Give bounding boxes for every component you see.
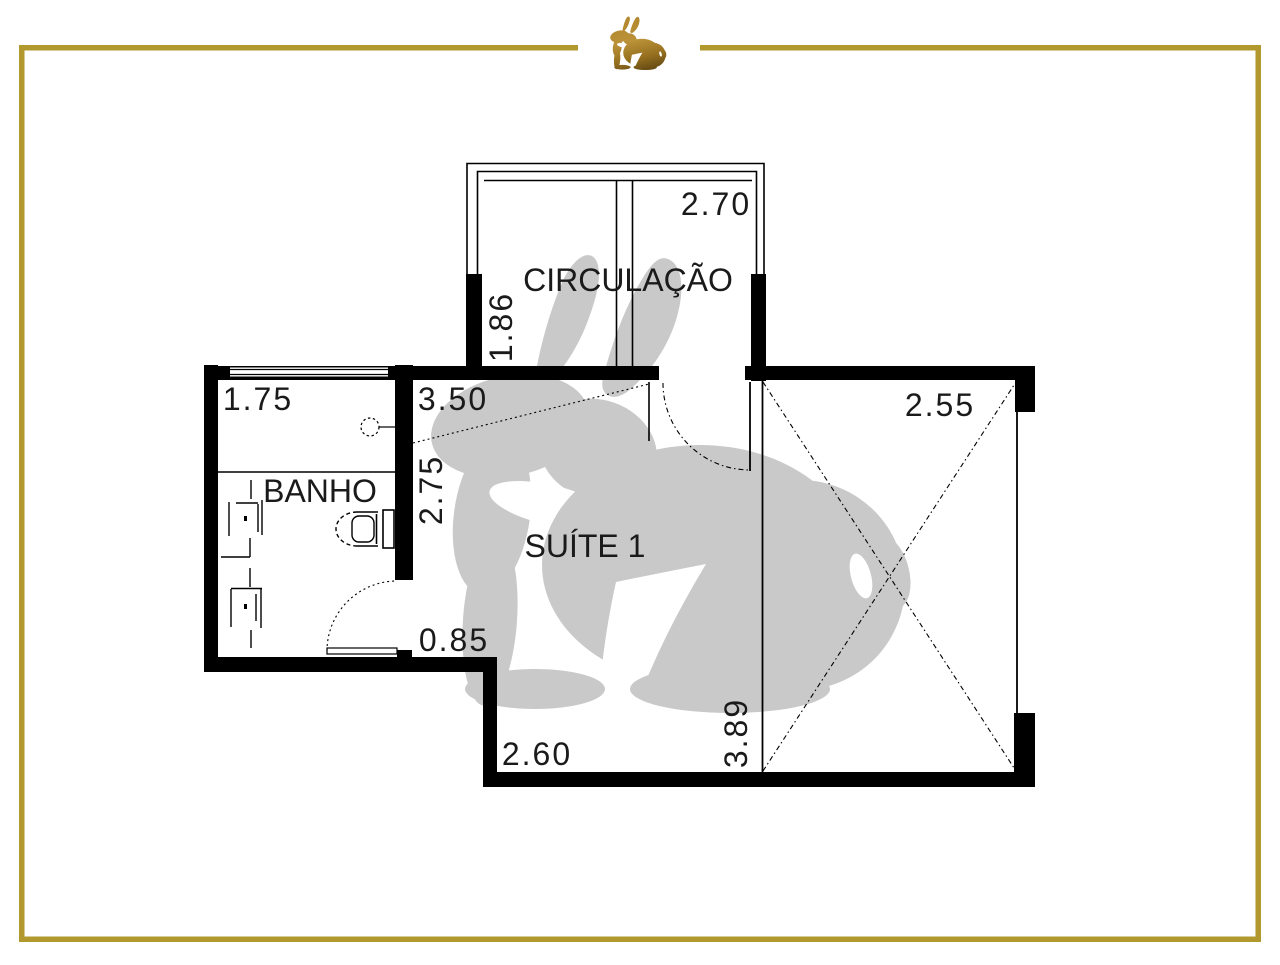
svg-text:2.70: 2.70: [681, 186, 751, 222]
svg-text:BANHO: BANHO: [263, 473, 377, 509]
svg-text:CIRCULAÇÃO: CIRCULAÇÃO: [523, 262, 733, 298]
svg-text:2.60: 2.60: [502, 736, 572, 772]
svg-text:3.50: 3.50: [418, 381, 488, 417]
svg-text:2.55: 2.55: [905, 387, 975, 423]
svg-text:SUÍTE 1: SUÍTE 1: [525, 528, 646, 564]
svg-text:2.75: 2.75: [413, 455, 449, 525]
svg-text:1.75: 1.75: [223, 381, 293, 417]
svg-text:1.86: 1.86: [483, 292, 519, 362]
svg-text:3.89: 3.89: [718, 698, 754, 768]
svg-text:0.85: 0.85: [419, 622, 489, 658]
